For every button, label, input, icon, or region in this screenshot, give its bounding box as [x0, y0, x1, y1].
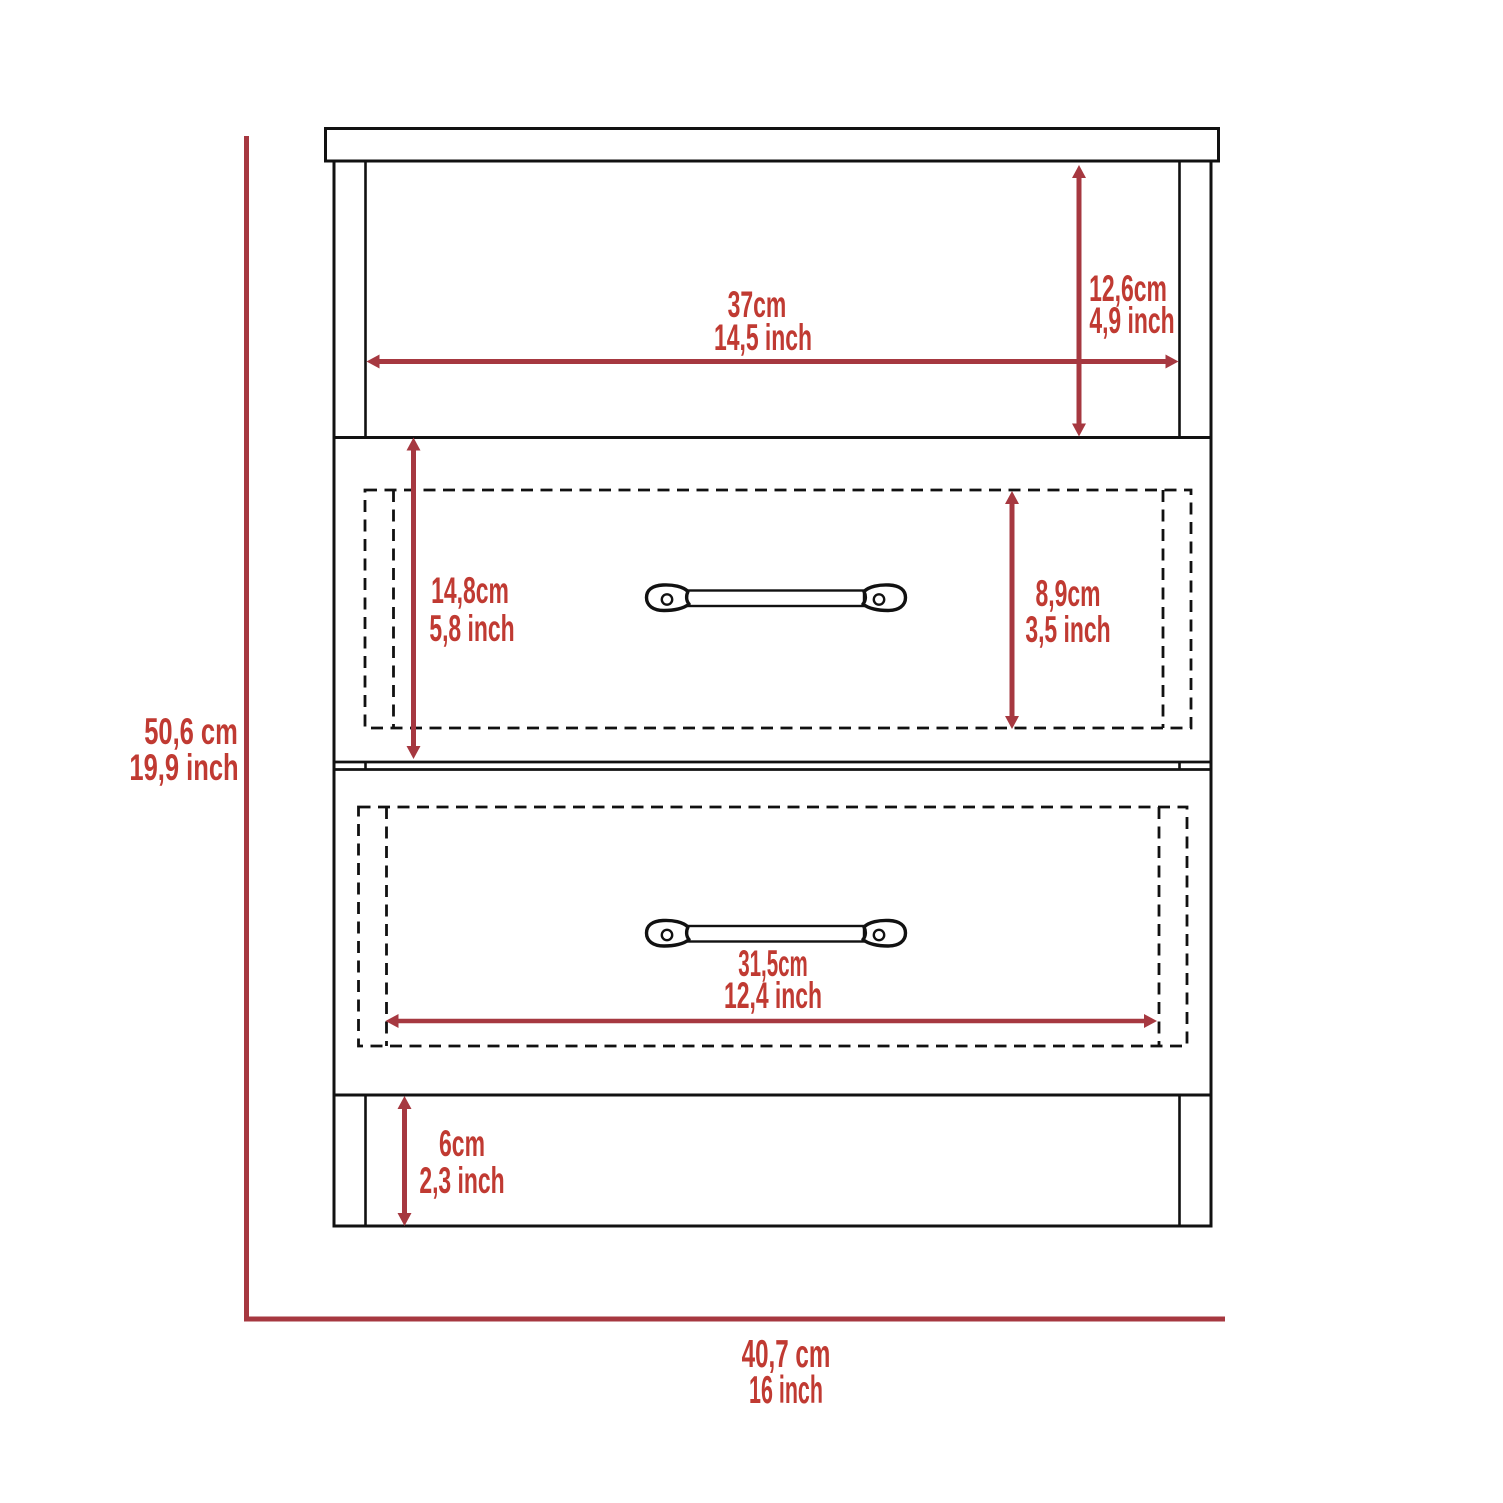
svg-text:6cm: 6cm [439, 1122, 485, 1164]
svg-text:12,4 inch: 12,4 inch [724, 974, 822, 1016]
svg-text:2,3 inch: 2,3 inch [419, 1159, 504, 1201]
svg-text:4,9 inch: 4,9 inch [1089, 299, 1174, 341]
svg-text:16 inch: 16 inch [749, 1368, 823, 1411]
svg-text:19,9 inch: 19,9 inch [129, 746, 238, 788]
svg-text:3,5 inch: 3,5 inch [1025, 608, 1110, 650]
svg-text:14,5 inch: 14,5 inch [714, 316, 812, 358]
svg-text:14,8cm: 14,8cm [431, 569, 509, 611]
svg-text:5,8 inch: 5,8 inch [429, 607, 514, 649]
